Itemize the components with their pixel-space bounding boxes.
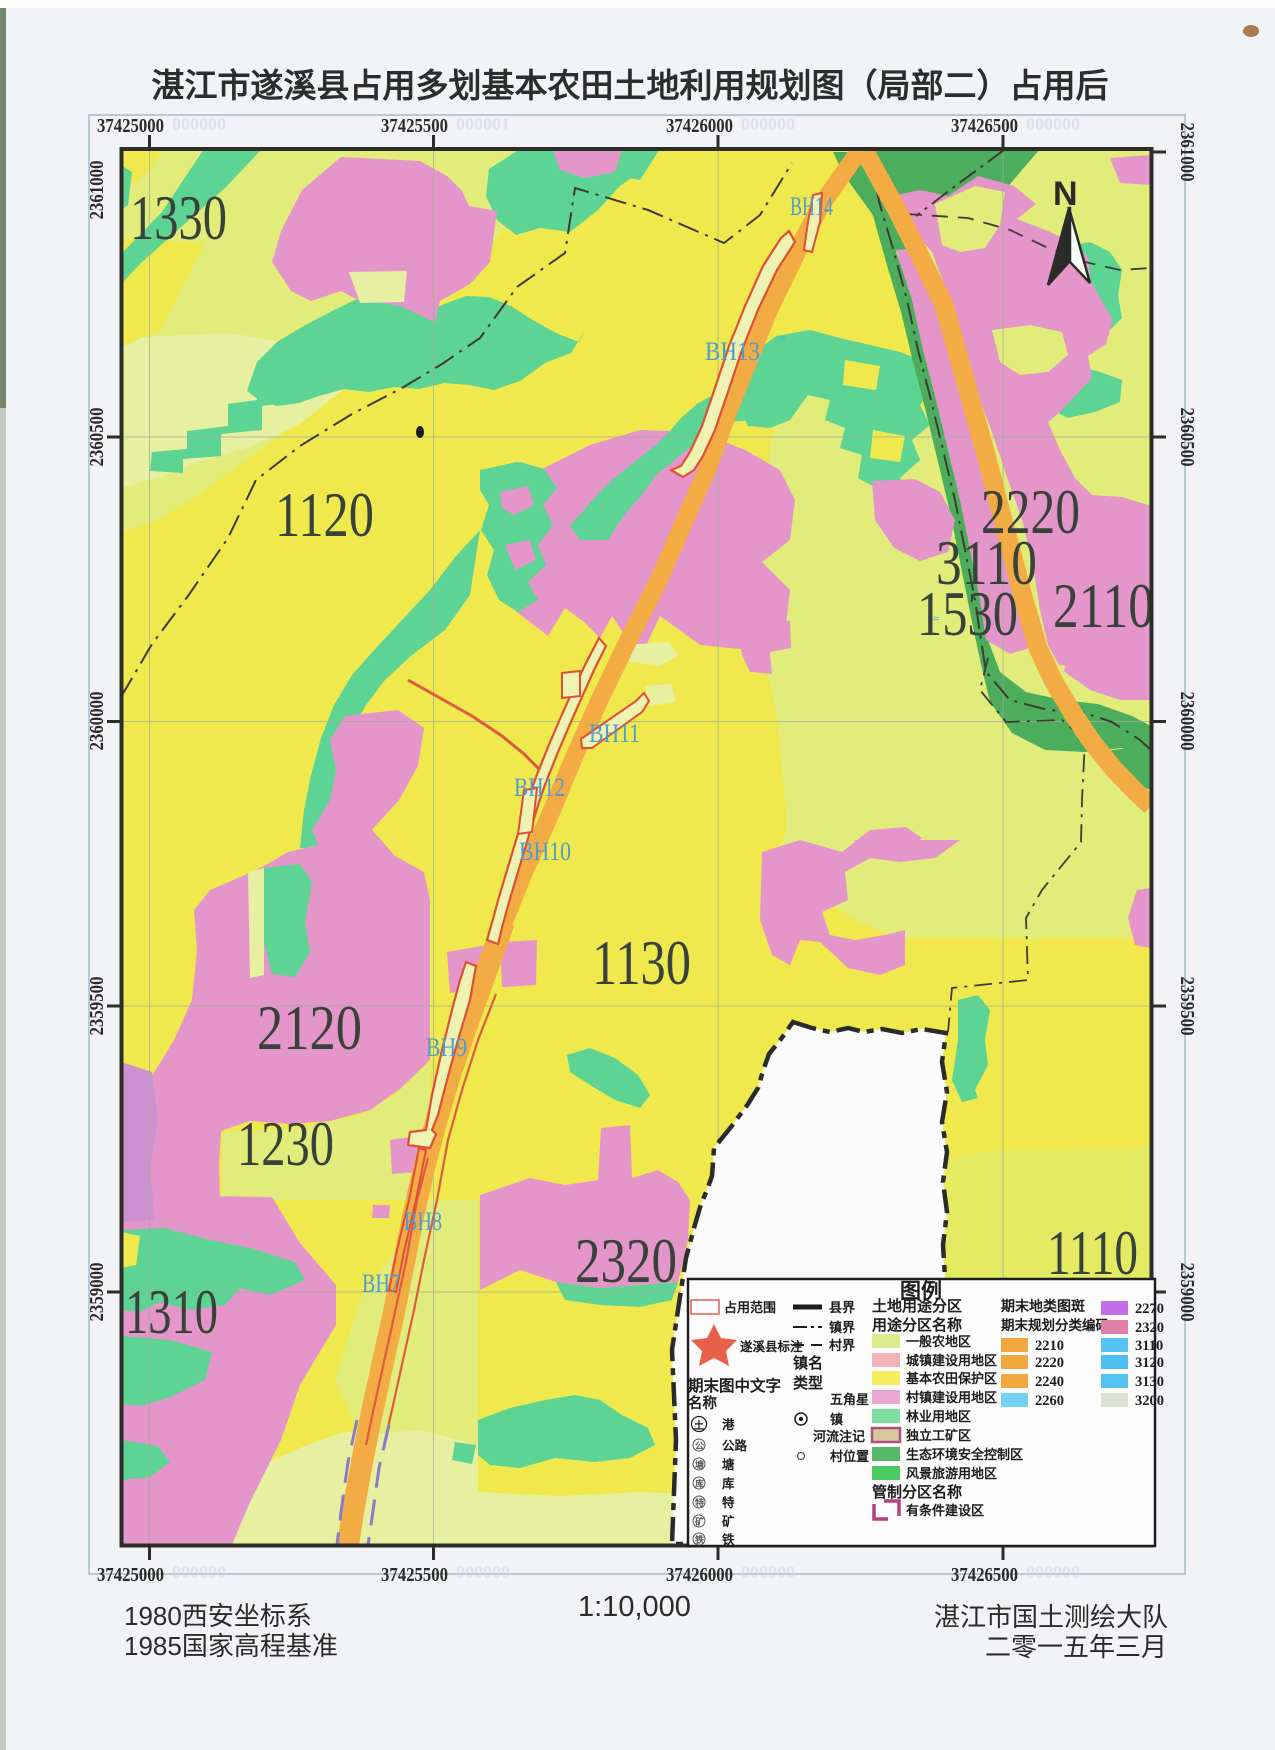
svg-text:37426500: 37426500 [951, 115, 1018, 137]
svg-text:2320: 2320 [575, 1226, 677, 1296]
svg-text:塘: 塘 [695, 1459, 704, 1470]
svg-text:37426000: 37426000 [666, 115, 733, 137]
svg-text:2360500: 2360500 [86, 408, 108, 467]
svg-text:基本农田保护区: 基本农田保护区 [905, 1371, 997, 1386]
svg-text:1130: 1130 [592, 928, 691, 998]
svg-text:公路: 公路 [722, 1438, 748, 1453]
svg-text:2260: 2260 [1035, 1393, 1064, 1409]
svg-text:000001: 000001 [456, 114, 510, 134]
svg-text:县界: 县界 [829, 1300, 855, 1315]
svg-text:镇: 镇 [830, 1412, 843, 1427]
svg-text:BH14: BH14 [790, 192, 833, 221]
svg-text:BH13: BH13 [705, 337, 760, 366]
svg-text:湛江市国土测绘大队: 湛江市国土测绘大队 [934, 1602, 1168, 1632]
svg-text:港: 港 [722, 1417, 735, 1432]
svg-text:1110: 1110 [1047, 1218, 1138, 1288]
svg-text:000000: 000000 [172, 1562, 226, 1582]
svg-text:期末图中文字: 期末图中文字 [688, 1376, 781, 1395]
svg-text:2120: 2120 [257, 993, 362, 1063]
svg-text:遂溪县标注: 遂溪县标注 [740, 1339, 803, 1354]
svg-text:占用范围: 占用范围 [724, 1300, 776, 1315]
svg-text:BH12: BH12 [514, 773, 565, 802]
svg-text:特: 特 [722, 1495, 735, 1510]
svg-text:村界: 村界 [829, 1338, 855, 1353]
svg-text:1310: 1310 [125, 1277, 218, 1347]
svg-text:库: 库 [722, 1476, 735, 1491]
svg-text:1230: 1230 [237, 1109, 334, 1179]
svg-text:湛江市遂溪县占用多划基本农田土地利用规划图（局部二）占用后: 湛江市遂溪县占用多划基本农田土地利用规划图（局部二）占用后 [152, 67, 1109, 104]
svg-text:000000: 000000 [456, 1562, 510, 1582]
svg-text:村镇建设用地区: 村镇建设用地区 [906, 1390, 997, 1405]
svg-text:37425500: 37425500 [381, 1564, 448, 1586]
svg-text:生态环境安全控制区: 生态环境安全控制区 [906, 1447, 1023, 1462]
svg-text:特: 特 [695, 1497, 704, 1508]
svg-text:BH8: BH8 [404, 1207, 442, 1236]
svg-text:3120: 3120 [1135, 1355, 1164, 1371]
svg-text:2360000: 2360000 [1176, 692, 1198, 751]
svg-text:2270: 2270 [1135, 1301, 1164, 1317]
svg-text:2360500: 2360500 [1176, 408, 1198, 467]
svg-text:N: N [1053, 175, 1078, 213]
svg-text:≈: ≈ [780, 333, 786, 345]
svg-text:37425000: 37425000 [97, 115, 164, 137]
svg-text:村位置: 村位置 [830, 1449, 869, 1464]
svg-text:000000: 000000 [1026, 114, 1080, 134]
svg-text:铁: 铁 [722, 1532, 735, 1547]
svg-text:3130: 3130 [1135, 1374, 1164, 1390]
svg-text:2110: 2110 [1053, 571, 1154, 641]
svg-text:000000: 000000 [172, 114, 226, 134]
svg-text:2210: 2210 [1035, 1338, 1064, 1354]
svg-text:类型: 类型 [793, 1374, 823, 1392]
svg-text:000000: 000000 [741, 1562, 795, 1582]
svg-text:镇名: 镇名 [793, 1354, 823, 1372]
svg-text:BH9: BH9 [426, 1033, 467, 1062]
svg-text:37426000: 37426000 [666, 1564, 733, 1586]
svg-text:河流注记: 河流注记 [813, 1429, 865, 1444]
svg-text:林业用地区: 林业用地区 [906, 1409, 971, 1424]
svg-text:1530: 1530 [917, 579, 1018, 649]
svg-text:1330: 1330 [130, 183, 227, 253]
svg-text:2361000: 2361000 [1176, 123, 1198, 182]
svg-text:2220: 2220 [1035, 1355, 1064, 1371]
svg-text:2360000: 2360000 [86, 692, 108, 751]
svg-text:管制分区名称: 管制分区名称 [872, 1483, 962, 1501]
svg-text:库: 库 [695, 1478, 704, 1489]
svg-text:有条件建设区: 有条件建设区 [906, 1503, 984, 1518]
svg-text:风景旅游用地区: 风景旅游用地区 [906, 1466, 997, 1481]
svg-text:2359500: 2359500 [86, 977, 108, 1036]
svg-text:BH7: BH7 [362, 1269, 400, 1298]
svg-text:铁: 铁 [695, 1534, 704, 1545]
svg-text:2240: 2240 [1035, 1374, 1064, 1390]
svg-text:用途分区名称: 用途分区名称 [872, 1316, 962, 1334]
svg-text:2359000: 2359000 [1176, 1263, 1198, 1322]
svg-text:2361000: 2361000 [86, 161, 108, 220]
svg-text:BH10: BH10 [519, 837, 571, 866]
svg-text:期末地类图斑: 期末地类图斑 [1001, 1298, 1085, 1314]
svg-text:1985国家高程基准: 1985国家高程基准 [124, 1631, 338, 1661]
svg-text:1980西安坐标系: 1980西安坐标系 [124, 1601, 312, 1631]
svg-text:独立工矿区: 独立工矿区 [906, 1428, 971, 1443]
svg-text:二零一五年三月: 二零一五年三月 [985, 1632, 1167, 1662]
svg-text:000000: 000000 [741, 114, 795, 134]
svg-text:1:10,000: 1:10,000 [578, 1591, 691, 1623]
svg-text:000000: 000000 [1026, 1562, 1080, 1582]
svg-text:矿: 矿 [722, 1514, 735, 1529]
svg-text:土地用途分区: 土地用途分区 [872, 1297, 962, 1315]
svg-text:37426500: 37426500 [951, 1564, 1018, 1586]
svg-text:37425500: 37425500 [381, 115, 448, 137]
svg-text:BH11: BH11 [589, 719, 640, 748]
svg-text:3200: 3200 [1135, 1393, 1164, 1409]
svg-text:37425000: 37425000 [97, 1564, 164, 1586]
svg-text:公: 公 [695, 1441, 704, 1451]
svg-text:镇界: 镇界 [829, 1320, 855, 1335]
svg-text:名称: 名称 [688, 1394, 717, 1412]
svg-text:五角星: 五角星 [830, 1392, 869, 1407]
svg-text:塘: 塘 [722, 1457, 735, 1472]
svg-text:期末规划分类编码: 期末规划分类编码 [1001, 1317, 1109, 1333]
svg-text:2359000: 2359000 [86, 1263, 108, 1322]
svg-text:矿: 矿 [695, 1516, 704, 1527]
svg-text:城镇建设用地区: 城镇建设用地区 [906, 1353, 997, 1368]
svg-text:1120: 1120 [275, 480, 374, 550]
svg-text:2320: 2320 [1135, 1320, 1164, 1336]
svg-text:土: 土 [694, 1419, 704, 1432]
svg-text:一般农地区: 一般农地区 [906, 1334, 971, 1349]
svg-text:3110: 3110 [1135, 1338, 1163, 1354]
svg-text:2359500: 2359500 [1176, 977, 1198, 1036]
